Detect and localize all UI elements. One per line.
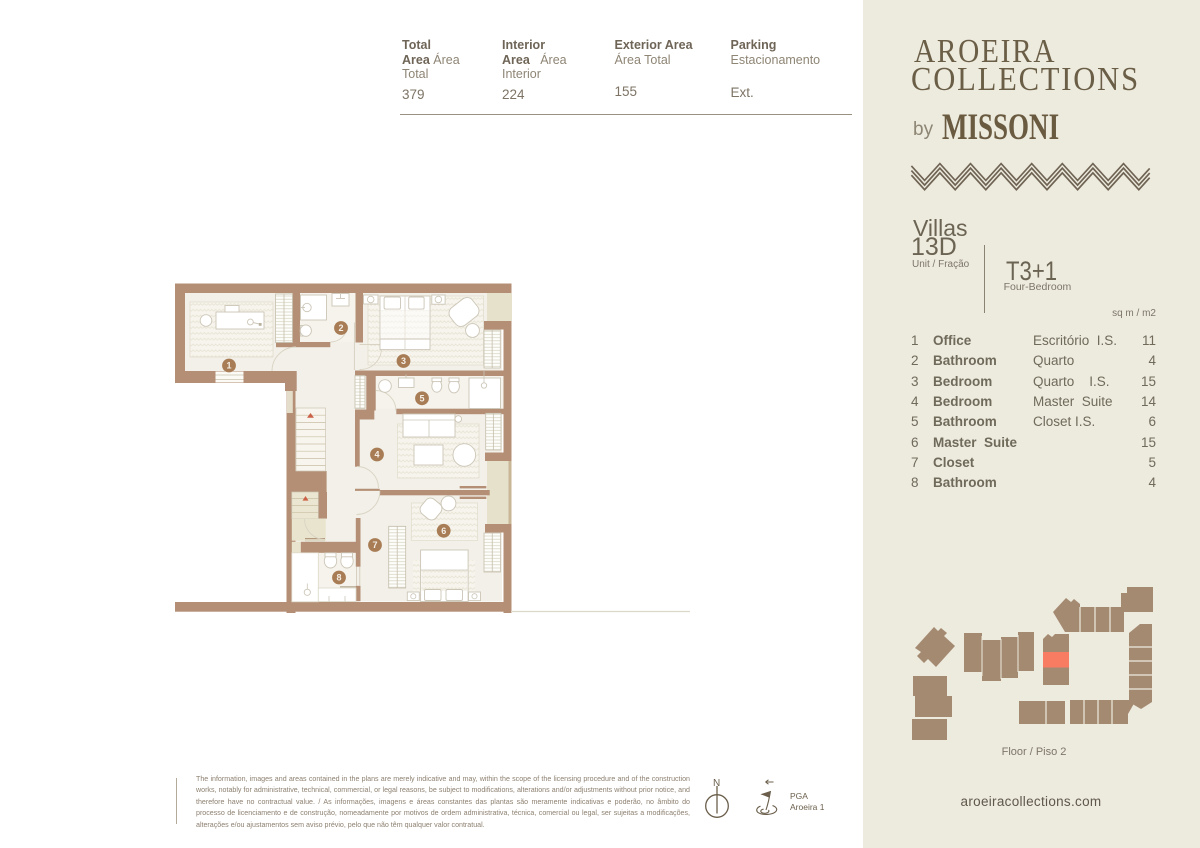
- svg-text:4: 4: [374, 450, 379, 460]
- svg-text:5: 5: [419, 393, 424, 403]
- svg-text:1: 1: [226, 361, 231, 371]
- svg-text:8: 8: [336, 573, 341, 583]
- svg-text:3: 3: [401, 356, 406, 366]
- svg-text:2: 2: [338, 323, 343, 333]
- svg-text:6: 6: [441, 526, 446, 536]
- svg-text:7: 7: [372, 540, 377, 550]
- svg-text:N: N: [713, 778, 720, 789]
